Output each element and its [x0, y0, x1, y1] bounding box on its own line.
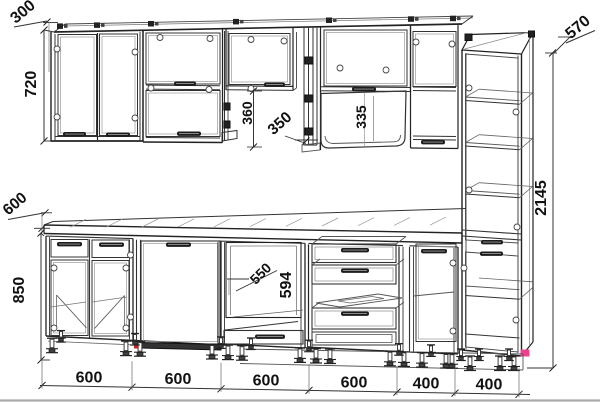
- svg-text:360: 360: [239, 101, 255, 125]
- svg-text:2145: 2145: [533, 180, 550, 216]
- svg-text:335: 335: [353, 105, 369, 129]
- svg-text:600: 600: [253, 373, 280, 390]
- svg-text:600: 600: [341, 374, 368, 391]
- svg-text:850: 850: [11, 277, 28, 304]
- svg-text:400: 400: [476, 377, 503, 394]
- svg-text:600: 600: [165, 371, 192, 388]
- svg-text:600: 600: [76, 369, 103, 386]
- svg-text:400: 400: [413, 376, 440, 393]
- svg-text:594: 594: [278, 272, 295, 299]
- svg-text:720: 720: [23, 71, 40, 98]
